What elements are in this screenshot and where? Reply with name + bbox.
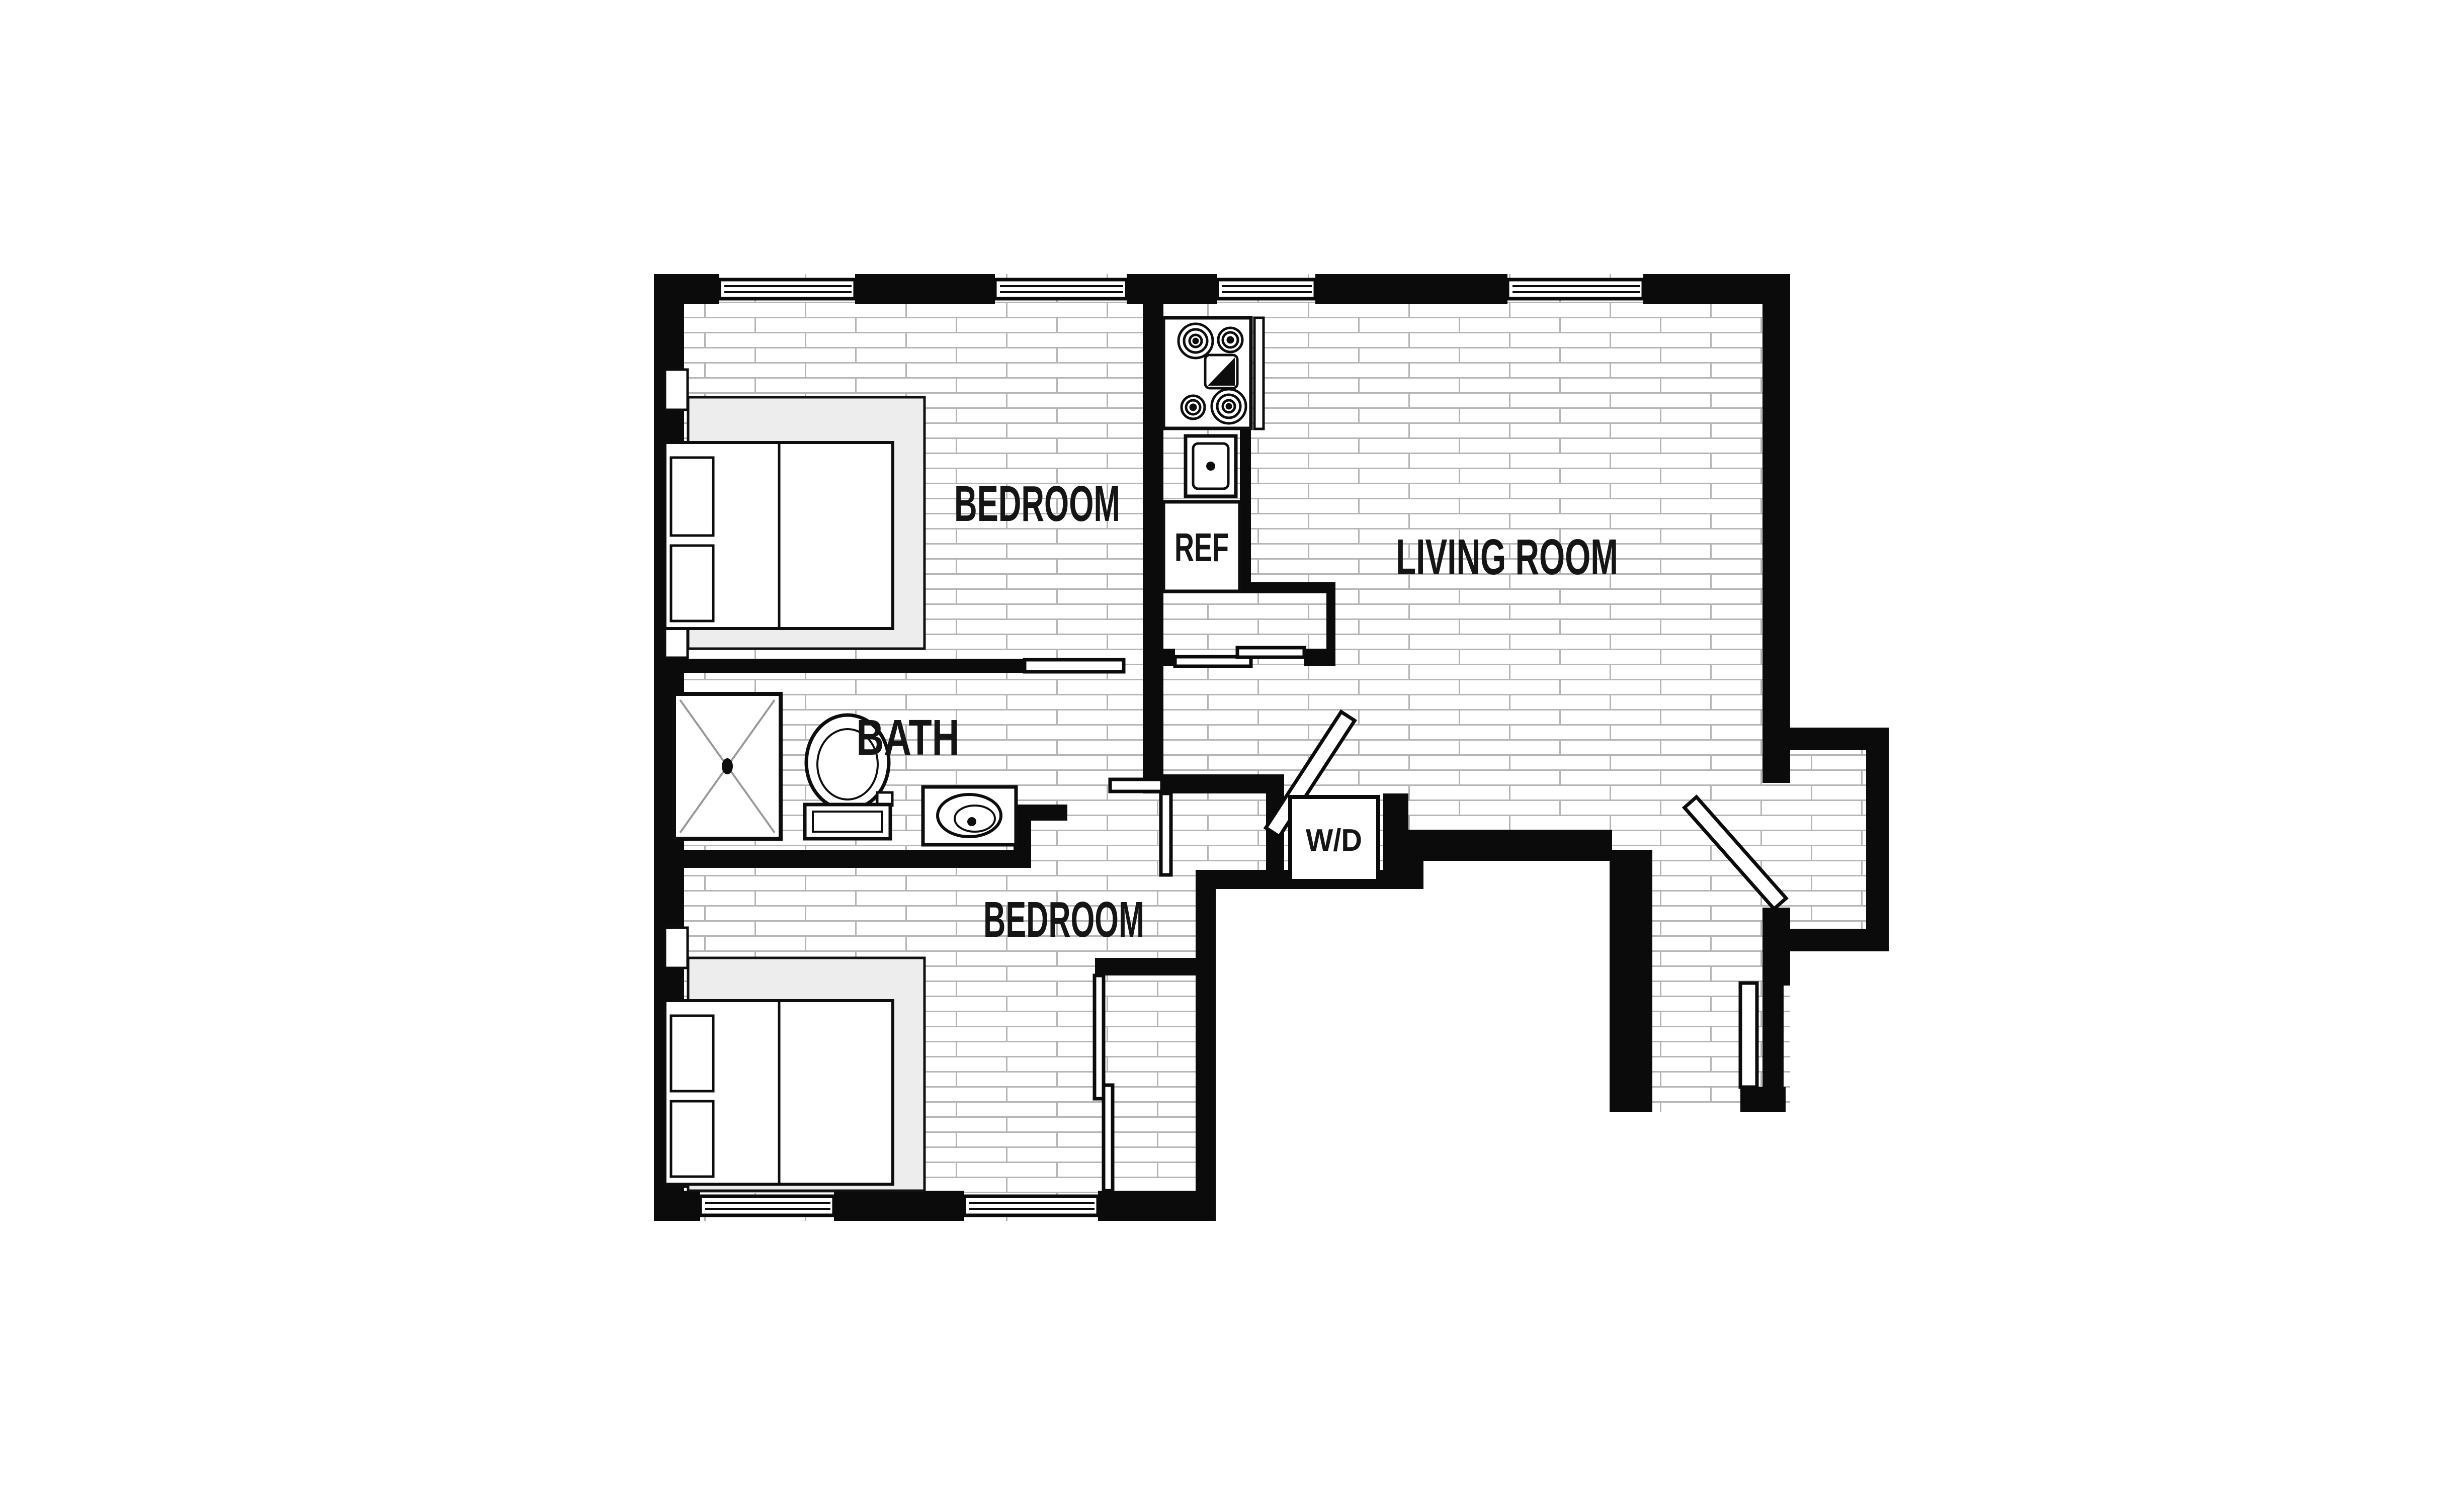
door-bedroom1 xyxy=(1025,660,1124,672)
window-icon xyxy=(1507,280,1643,299)
window-icon xyxy=(995,280,1127,299)
refrigerator-icon: REF xyxy=(1163,502,1240,591)
ref-label: REF xyxy=(1174,525,1229,570)
wall-void-connector xyxy=(1403,830,1423,889)
wall-bottom xyxy=(834,1191,964,1221)
window-icon xyxy=(1217,280,1315,299)
label-living-room: LIVING ROOM xyxy=(1396,529,1618,585)
wall-entry-stub xyxy=(1762,908,1790,986)
washer-dryer-icon: W/D xyxy=(1290,797,1378,881)
exterior-bottom-right xyxy=(1216,1112,1889,1221)
label-bedroom-top: BEDROOM xyxy=(954,476,1120,532)
wall-bath-south xyxy=(654,850,1031,868)
wall-bedroom1-bath xyxy=(654,659,1025,673)
pillow-icon xyxy=(671,1016,713,1091)
shower-icon xyxy=(674,694,781,839)
bed-bottom xyxy=(665,928,925,1191)
wall-alcove-east xyxy=(1866,750,1889,951)
nightstand xyxy=(665,629,688,658)
wall-bath-east-stub xyxy=(1031,805,1067,821)
door-closet-bypass-2 xyxy=(1104,1085,1113,1191)
floor-plan: REF W/D BEDROOM LIVING ROOM BA xyxy=(0,0,2437,1512)
window-icon xyxy=(964,1196,1098,1215)
door-closet-bypass-1 xyxy=(1095,975,1104,1099)
entry-sidelight xyxy=(1740,983,1757,1087)
pillow-icon xyxy=(671,546,713,621)
window-icon xyxy=(700,1196,834,1215)
wall-kitchen-west xyxy=(1143,304,1163,793)
door-bedroom2-top xyxy=(1110,779,1162,791)
wall-bedroom2-east xyxy=(1196,870,1216,1221)
pillow-icon xyxy=(671,458,713,536)
counter-edge xyxy=(1254,318,1264,429)
void-shaft-upper xyxy=(1423,861,1610,889)
wall-alcove-south xyxy=(1784,929,1889,951)
bed-top xyxy=(665,370,925,658)
nightstand xyxy=(665,928,688,968)
wall-alcove-north xyxy=(1784,728,1889,750)
door-bedroom2-leaf xyxy=(1161,793,1171,875)
wall-right-upper xyxy=(1762,274,1790,783)
window-icon xyxy=(719,280,855,299)
kitchen-sink-icon xyxy=(1186,436,1236,496)
exterior-right-lower xyxy=(1790,951,1889,1112)
wall-top xyxy=(855,274,995,304)
wall-top xyxy=(1127,274,1217,304)
pillow-icon xyxy=(671,1101,713,1177)
wall-bottom xyxy=(654,1191,700,1221)
wd-label: W/D xyxy=(1306,823,1362,858)
door-kitchen-slider-2 xyxy=(1237,648,1304,657)
cutting-board-icon xyxy=(1205,355,1237,388)
wall-right-foot xyxy=(1740,1087,1786,1112)
wall-top xyxy=(1315,274,1507,304)
vanity-sink-icon xyxy=(923,787,1016,845)
wall-bedroom2-north xyxy=(1160,774,1284,793)
wall-bedroom2-closet-north xyxy=(1095,958,1196,975)
exterior-right-upper xyxy=(1790,274,1889,728)
void-shaft xyxy=(1216,889,1610,1112)
label-bedroom-bottom: BEDROOM xyxy=(983,892,1144,948)
wall-void-east xyxy=(1610,850,1652,1112)
jamb-kitchen-closet-right xyxy=(1304,649,1335,666)
nightstand xyxy=(665,370,688,410)
stove-icon xyxy=(1163,318,1251,428)
wall-right-lower xyxy=(1762,986,1784,1089)
label-bath: BATH xyxy=(857,709,960,766)
wall-void-north xyxy=(1403,830,1612,861)
